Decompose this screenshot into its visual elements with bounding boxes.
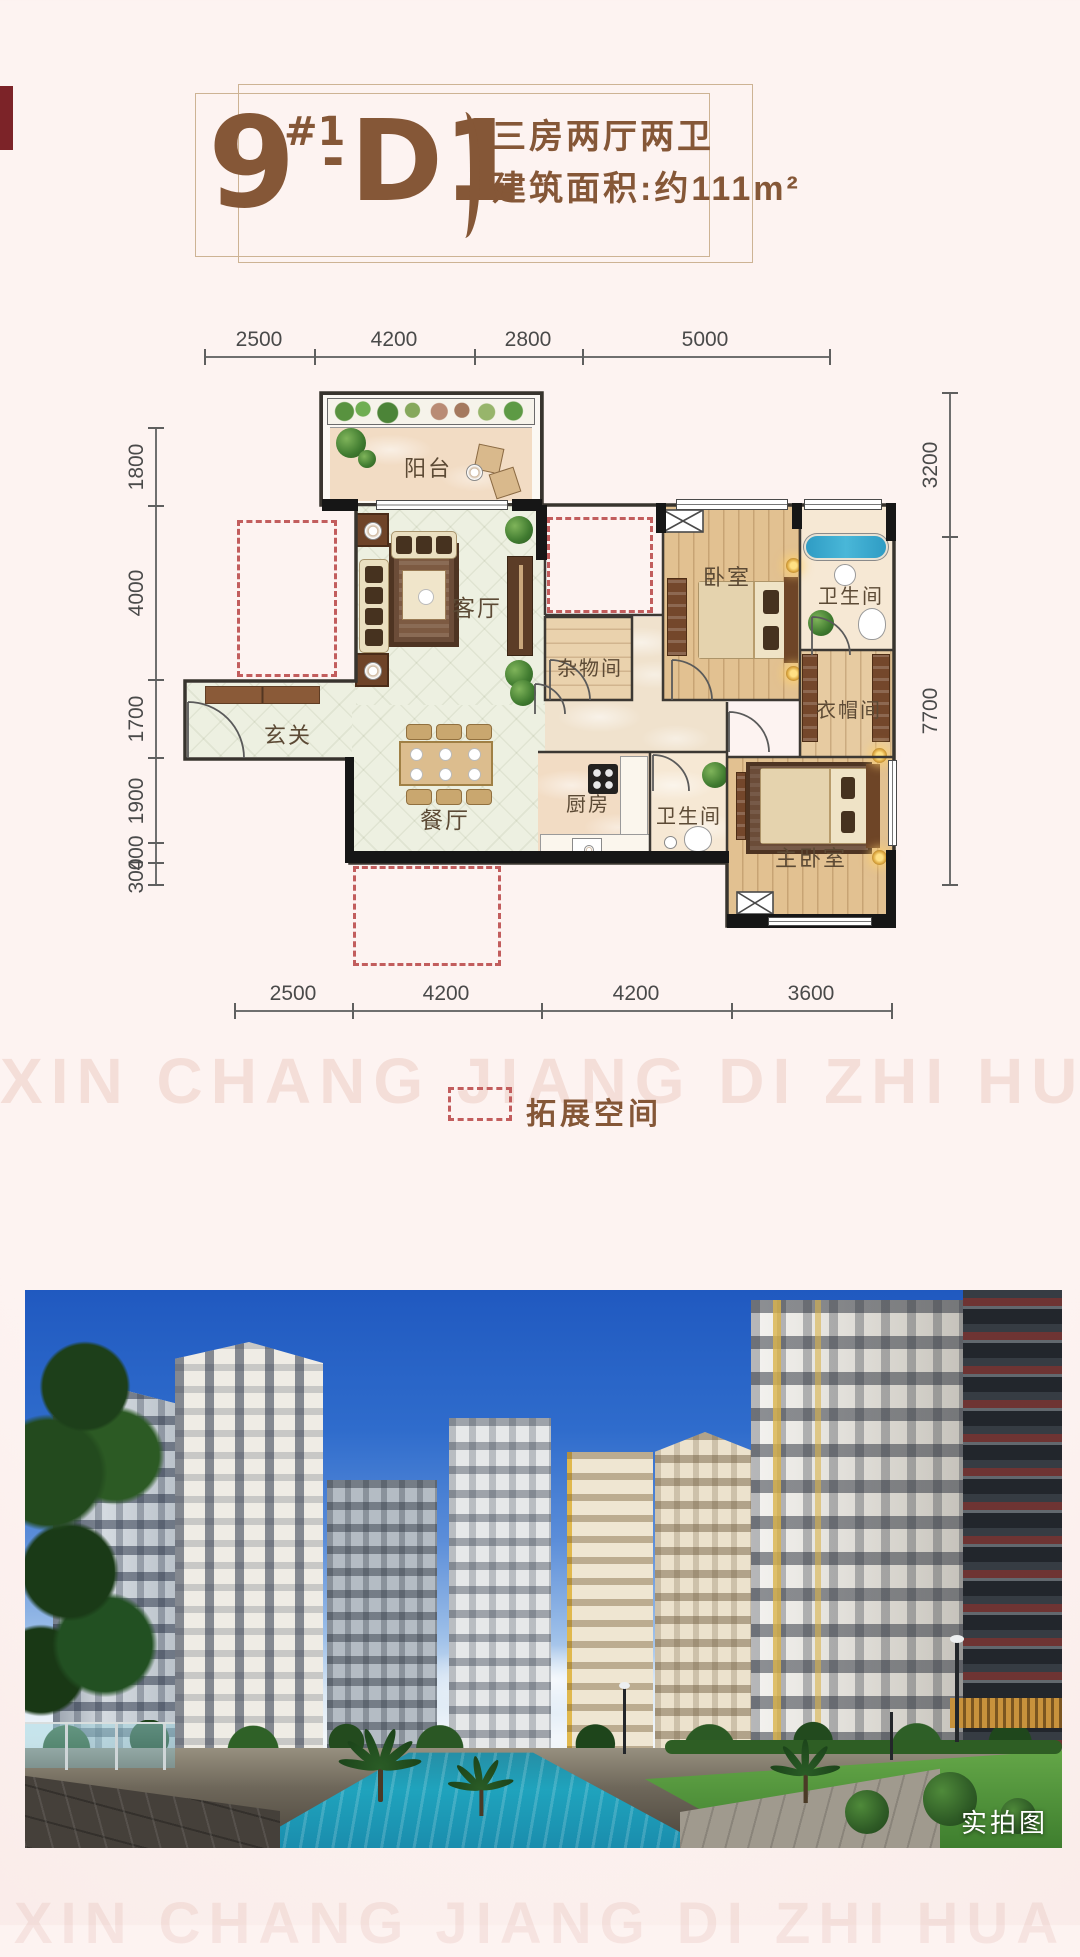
- room-label-bath-second: 卫生间: [656, 800, 722, 829]
- side-table: [355, 653, 389, 687]
- plant: [505, 516, 533, 544]
- ruler-tick: [474, 349, 476, 365]
- wall-segment: [886, 503, 896, 541]
- ruler-tick: [942, 392, 958, 394]
- toilet: [858, 608, 886, 640]
- headboard: [866, 764, 880, 848]
- wardrobe: [667, 578, 687, 656]
- dining-chair: [466, 724, 492, 740]
- tree-large: [25, 1335, 225, 1765]
- bedside-lamp: [786, 558, 801, 573]
- building-tower: [449, 1418, 551, 1763]
- expansion-zone-left: [237, 520, 337, 677]
- blanket: [761, 769, 831, 843]
- room-label-cloakroom: 衣帽间: [816, 694, 882, 723]
- dim-top-1: 2500: [236, 328, 283, 352]
- room-label-entry: 玄关: [264, 718, 312, 750]
- dim-top-2: 4200: [371, 328, 418, 352]
- crescent-divider-icon: [450, 112, 480, 238]
- lamp-post: [890, 1712, 893, 1760]
- dim-bottom-3: 4200: [613, 982, 660, 1006]
- palm-trunk: [804, 1772, 808, 1803]
- room-label-living: 客厅: [452, 589, 502, 623]
- sofa-left: [359, 559, 389, 653]
- dim-left-2: 4000: [125, 570, 149, 617]
- window: [888, 760, 897, 846]
- window: [676, 499, 788, 510]
- cushion: [436, 536, 452, 554]
- ruler-tick: [148, 427, 164, 429]
- legend-label: 拓展空间: [526, 1089, 662, 1133]
- dim-bottom-1: 2500: [270, 982, 317, 1006]
- ruler-tick: [582, 349, 584, 365]
- wall-segment: [886, 850, 896, 920]
- tv-console: [507, 556, 533, 656]
- wall-segment: [536, 505, 547, 560]
- expansion-zone-middle: [547, 517, 653, 613]
- unit-dash: -: [322, 132, 344, 186]
- table-plant: [364, 522, 382, 540]
- ruler-right-line: [949, 392, 951, 886]
- room-label-kitchen: 厨房: [566, 788, 610, 817]
- dim-bottom-4: 3600: [788, 982, 835, 1006]
- headboard: [784, 577, 798, 663]
- ruler-tick: [148, 757, 164, 759]
- blanket: [699, 582, 755, 658]
- plant: [702, 762, 728, 788]
- ruler-tick: [731, 1003, 733, 1019]
- dim-left-4: 1900: [125, 778, 149, 825]
- dim-left-3: 1700: [125, 696, 149, 743]
- lamp-head: [950, 1635, 964, 1643]
- cushion: [365, 629, 383, 646]
- plant: [808, 610, 834, 636]
- ruler-tick: [148, 505, 164, 507]
- room-label-bath-main: 卫生间: [818, 580, 884, 609]
- lamp-post: [623, 1688, 626, 1754]
- dining-chair: [436, 724, 462, 740]
- palm-trunk: [479, 1787, 483, 1816]
- room-label-storage: 杂物间: [557, 652, 623, 681]
- balcony-planter: [327, 398, 535, 425]
- wall-segment: [322, 499, 358, 511]
- lamp-post: [955, 1642, 959, 1742]
- orange-fence: [950, 1698, 1062, 1728]
- unit-spec-line: 三房两厅两卫: [492, 120, 714, 154]
- cushion: [396, 536, 412, 554]
- pillow: [841, 777, 855, 799]
- ruler-tick: [148, 862, 164, 864]
- dim-right-2: 7700: [919, 688, 943, 735]
- ruler-tick: [148, 884, 164, 886]
- ruler-tick: [204, 349, 206, 365]
- wall-segment: [347, 851, 647, 863]
- plate: [410, 748, 423, 761]
- plant: [510, 680, 536, 706]
- community-photo: 实拍图: [25, 1290, 1062, 1848]
- plate: [468, 768, 481, 781]
- decor-plate: [418, 589, 434, 605]
- corner-brand-tab: [0, 86, 13, 150]
- ruler-tick: [234, 1003, 236, 1019]
- brand-watermark-bottom: XIN CHANG JIANG DI ZHI HUA: [0, 1890, 1080, 1957]
- master-bed: [760, 768, 868, 844]
- dining-table: [399, 741, 493, 786]
- lawn-tree: [845, 1790, 889, 1834]
- ruler-tick: [352, 1003, 354, 1019]
- room-label-bedroom: 卧室: [703, 560, 751, 592]
- dim-right-1: 3200: [919, 442, 943, 489]
- room-label-master: 主卧室: [775, 841, 847, 873]
- cushion: [416, 536, 432, 554]
- wall-segment: [656, 503, 666, 533]
- window: [768, 917, 872, 926]
- cushion: [365, 566, 383, 583]
- table-plant: [364, 662, 382, 680]
- photo-tag: 实拍图: [961, 1803, 1048, 1840]
- wall-segment: [345, 757, 354, 863]
- corridor-floor2: [632, 617, 663, 702]
- ruler-tick: [541, 1003, 543, 1019]
- building-tower: [567, 1452, 653, 1762]
- legend-dashed-box: [448, 1087, 512, 1121]
- palm-tree: [445, 1768, 517, 1816]
- ruler-tick: [314, 349, 316, 365]
- plate: [468, 748, 481, 761]
- bedside-lamp: [872, 850, 887, 865]
- dim-left-1: 1800: [125, 444, 149, 491]
- ruler-left-line: [155, 427, 157, 886]
- coffee-table: [402, 570, 446, 620]
- plate: [439, 748, 452, 761]
- palm-tree: [767, 1752, 844, 1803]
- building-tower-dark: [963, 1290, 1062, 1760]
- facade-accent: [815, 1300, 821, 1755]
- room-label-balcony: 阳台: [404, 451, 452, 483]
- balcony-table: [466, 464, 483, 481]
- room-label-dining: 餐厅: [420, 801, 470, 835]
- pillow: [763, 590, 779, 614]
- console-groove: [519, 565, 523, 649]
- wall-segment: [792, 503, 802, 529]
- unit-area-line: 建筑面积:约111m²: [492, 172, 801, 206]
- building-tower-near: [751, 1300, 967, 1755]
- toilet: [684, 826, 712, 852]
- bed: [698, 581, 786, 659]
- dim-left-6: 300: [125, 858, 149, 893]
- floor-drain: [664, 836, 677, 849]
- pillow: [763, 626, 779, 650]
- window: [804, 499, 882, 510]
- facade-accent: [773, 1300, 781, 1755]
- bedside-lamp: [872, 748, 887, 763]
- ruler-tick: [942, 884, 958, 886]
- hedge: [665, 1740, 1062, 1754]
- dim-top-3: 2800: [505, 328, 552, 352]
- cushion: [365, 587, 383, 604]
- unit-building-number: 9: [208, 100, 296, 226]
- ruler-top-line: [205, 356, 831, 358]
- ruler-bottom-line: [235, 1010, 893, 1012]
- dim-bottom-2: 4200: [423, 982, 470, 1006]
- side-table: [355, 513, 389, 547]
- window: [376, 500, 508, 510]
- sofa-top: [391, 531, 457, 559]
- wall-segment: [647, 851, 729, 863]
- bedside-lamp: [786, 666, 801, 681]
- plant: [358, 450, 376, 468]
- expansion-zone-bottom: [353, 866, 501, 966]
- dresser: [736, 772, 746, 840]
- poster-page: { "theme": { "accent": "#855737", "dash_…: [0, 0, 1080, 1925]
- ruler-tick: [148, 679, 164, 681]
- shoe-cabinet: [205, 686, 320, 704]
- plate: [410, 768, 423, 781]
- ruler-tick: [829, 349, 831, 365]
- palm-tree: [335, 1742, 425, 1802]
- corridor-floor: [545, 700, 727, 757]
- cushion: [365, 608, 383, 625]
- ruler-tick: [891, 1003, 893, 1019]
- ruler-tick: [942, 536, 958, 538]
- plate: [439, 768, 452, 781]
- building-tower: [655, 1432, 755, 1762]
- pillow: [841, 811, 855, 833]
- dim-top-4: 5000: [682, 328, 729, 352]
- dining-chair: [406, 724, 432, 740]
- palm-trunk: [378, 1766, 383, 1802]
- bathtub: [806, 536, 886, 558]
- lamp-head: [619, 1682, 630, 1689]
- ruler-tick: [148, 842, 164, 844]
